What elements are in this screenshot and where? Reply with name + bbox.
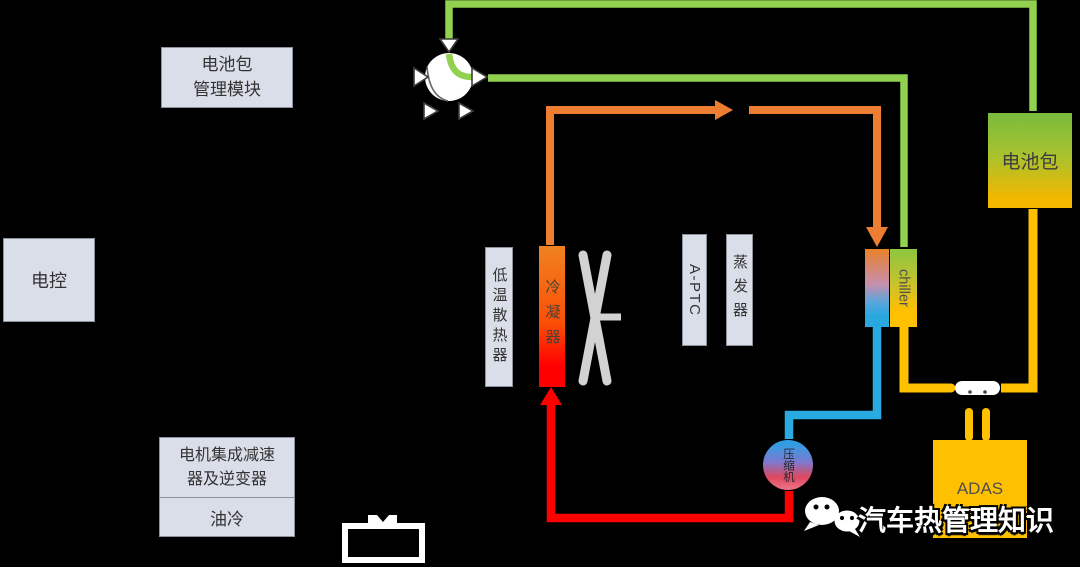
- oil-cooling-label: 油冷: [210, 505, 244, 530]
- chiller-label: chiller: [896, 269, 912, 307]
- condenser-label: 冷凝器: [542, 279, 563, 354]
- chiller-refrigerant-bar: [865, 249, 889, 327]
- lt-radiator-label: 低温散热器: [489, 267, 510, 367]
- motor-reducer-inverter-box: 电机集成减速 器及逆变器: [159, 437, 295, 498]
- battery-mgmt-module-box: 电池包 管理模块: [161, 47, 293, 108]
- a-ptc-label: A-PTC: [686, 264, 703, 317]
- a-ptc-bar: A-PTC: [682, 234, 707, 346]
- motor-reducer-inverter-label-line2: 器及逆变器: [179, 468, 275, 491]
- motor-controller-box: 电控: [3, 238, 95, 322]
- thermal-diagram: 电池包 管理模块 电控 电机集成减速 器及逆变器 油冷 低温散热器 冷凝器 A-…: [0, 0, 1080, 567]
- evaporator-bar: 蒸发器: [726, 234, 753, 346]
- battery-pack-label: 电池包: [1001, 147, 1058, 174]
- chiller-coolant-bar: chiller: [890, 249, 917, 327]
- components-layer: 电池包 管理模块 电控 电机集成减速 器及逆变器 油冷 低温散热器 冷凝器 A-…: [0, 0, 1080, 567]
- compressor-circle: 压缩机: [763, 440, 813, 490]
- battery-pack-box: 电池包: [988, 113, 1072, 208]
- watermark-text: 汽车热管理知识: [858, 499, 1054, 539]
- empty-outline-box: [342, 523, 425, 563]
- motor-controller-label: 电控: [31, 267, 67, 293]
- compressor-label: 压缩机: [780, 448, 796, 483]
- motor-reducer-inverter-label-line1: 电机集成减速: [179, 444, 275, 467]
- adas-label: ADAS: [957, 479, 1003, 499]
- oil-cooling-box: 油冷: [159, 497, 295, 537]
- evaporator-label: 蒸发器: [729, 254, 750, 326]
- condenser-bar: 冷凝器: [539, 246, 565, 387]
- lt-radiator-bar: 低温散热器: [485, 247, 513, 387]
- battery-mgmt-module-label-line1: 电池包: [193, 53, 261, 78]
- battery-mgmt-module-label-line2: 管理模块: [193, 78, 261, 103]
